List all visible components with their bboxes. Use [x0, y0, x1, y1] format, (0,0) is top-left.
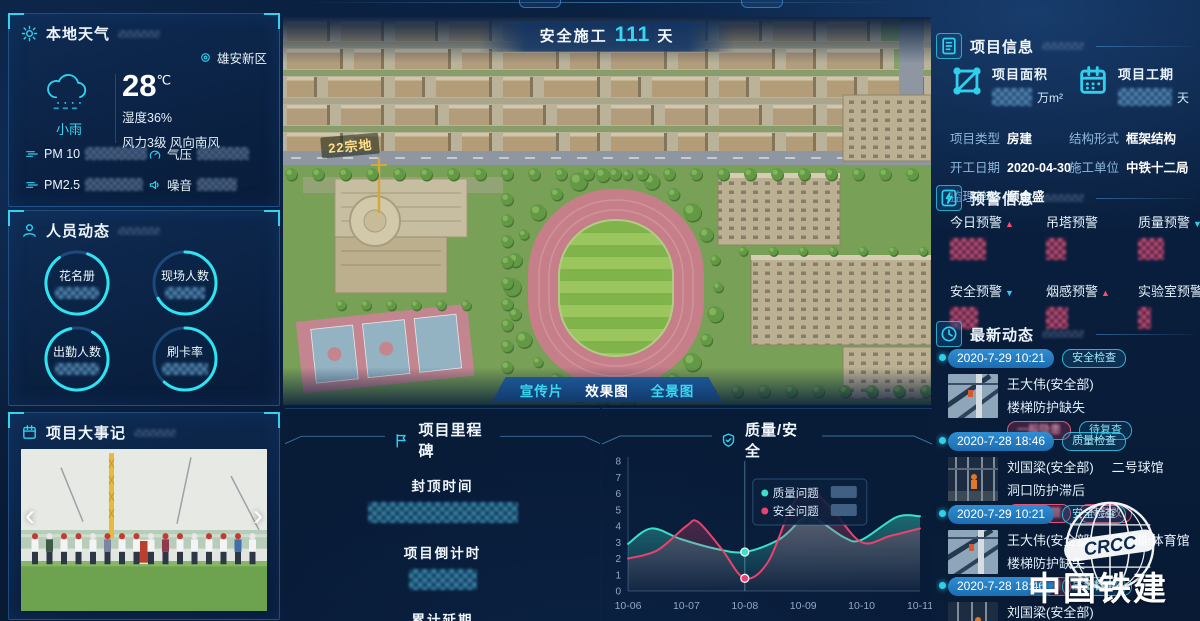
svg-text:安全问题: 安全问题: [773, 504, 819, 518]
entry-issue: 楼梯防护缺失: [1007, 553, 1194, 572]
metric-pm25: PM2.5: [25, 175, 148, 194]
humidity: 湿度36%: [122, 107, 220, 126]
svg-text:10-08: 10-08: [731, 600, 758, 612]
entry-person: 刘国梁(安全部): [1007, 602, 1094, 621]
person-icon: [21, 222, 38, 239]
field-start-date: 开工日期2020-04-30: [950, 157, 1069, 177]
top-bracket-decoration: [519, 0, 561, 8]
censored-value: [950, 238, 986, 260]
stat-label: 项目工期: [1118, 67, 1174, 82]
svg-text:3: 3: [615, 538, 621, 549]
censored-value: [368, 502, 518, 523]
project-events-panel: 项目大事记 ‹ ›: [8, 412, 280, 620]
quality-safety-panel: 质量/安全 01234567810-0610-0710-0810-0910-10…: [602, 408, 932, 621]
entry-time: 2020-7-28 18:46: [948, 432, 1054, 451]
timeline-dot: [939, 582, 946, 589]
sun-gear-icon: [21, 25, 38, 42]
entry-issue: 楼梯防护缺失: [1007, 397, 1194, 416]
calendar-book-icon: [21, 424, 38, 441]
field-contractor: 施工单位中铁十二局: [1069, 157, 1188, 177]
stat-unit: 天: [1177, 89, 1189, 106]
censored-value: [992, 88, 1032, 106]
divider: [115, 74, 116, 143]
temperature: 28℃: [122, 70, 220, 101]
timeline-dot: [939, 354, 946, 361]
censored-value: [55, 363, 99, 375]
ring-label: 花名册: [59, 267, 95, 284]
svg-text:10-07: 10-07: [673, 600, 700, 612]
document-icon: [936, 33, 962, 59]
weather-panel: 本地天气 雄安新区 小雨 28℃ 湿度36% 风力3级 风向南风: [8, 13, 280, 207]
stat-label: 项目面积: [992, 67, 1048, 82]
censored-header-text: [1042, 194, 1084, 202]
warning-today: 今日预警▲: [950, 212, 1046, 265]
campus-3d-render: [283, 17, 931, 405]
metric-noise: 噪音: [148, 175, 271, 194]
stat-project-area: 项目面积 万m²: [950, 64, 1063, 106]
scene-viewport[interactable]: 安全施工 111 天 22宗地 宣传片 效果图 全景图: [283, 17, 931, 405]
warning-crane: 吊塔预警: [1046, 212, 1138, 265]
censored-value: [197, 147, 249, 160]
entry-photo: [948, 530, 998, 574]
warnings-title: 预警信息: [970, 188, 1034, 209]
area-icon: [950, 64, 984, 98]
warning-quality: 质量预警▼: [1138, 212, 1200, 265]
svg-text:10-11: 10-11: [907, 600, 932, 612]
haze-icon: [25, 178, 39, 192]
field-project-type: 项目类型房建: [950, 128, 1069, 148]
entry-tag: 安全检查: [1062, 349, 1126, 368]
entry-person: 刘国梁(安全部): [1007, 457, 1094, 476]
warnings-panel: 预警信息 今日预警▲ 吊塔预警 质量预警▼ 安全预警▼ 烟感预警▲: [936, 176, 1194, 312]
svg-text:2: 2: [615, 554, 621, 565]
flag-icon: [393, 432, 410, 449]
stat-ring-onsite: 现场人数: [149, 247, 221, 319]
censored-value: [85, 147, 147, 160]
personnel-panel-title: 人员动态: [46, 220, 110, 241]
trend-up-icon: ▲: [1005, 219, 1014, 229]
district-label: 雄安新区: [199, 48, 267, 67]
events-panel-title: 项目大事记: [46, 422, 126, 443]
quality-safety-chart: 01234567810-0610-0710-0810-0910-1010-11质…: [602, 451, 932, 621]
header-line: [1096, 334, 1194, 335]
entry-person: 王大伟(安全部): [1007, 374, 1094, 393]
entry-issue: 洞口防护滞后: [1007, 480, 1194, 499]
haze-icon: [25, 147, 39, 161]
censored-value: [1138, 238, 1164, 260]
entry-time: 2020-7-29 10:21: [948, 349, 1054, 368]
svg-text:8: 8: [615, 457, 621, 468]
clock-icon: [936, 321, 962, 347]
metric-pressure: 气压: [148, 144, 271, 163]
title-decoration-left: [285, 435, 385, 445]
feed-entry[interactable]: 2020-7-28 18:46 质量检查 刘国梁(安全部): [948, 577, 1194, 621]
censored-header-text: [1042, 42, 1084, 50]
entry-tag: 质量检查: [1062, 577, 1126, 596]
safety-days-count: 111: [615, 23, 651, 47]
stat-project-duration: 项目工期 天: [1076, 64, 1189, 106]
alert-lightning-icon: [936, 185, 962, 211]
entry-time: 2020-7-29 10:21: [948, 505, 1054, 524]
milestone-delay: 累计延期: [285, 609, 600, 621]
censored-header-text: [118, 227, 160, 235]
tab-render-view[interactable]: 效果图: [585, 380, 629, 400]
svg-text:质量问题: 质量问题: [773, 487, 819, 500]
calendar-icon: [1076, 64, 1110, 98]
milestone-title: 项目里程碑: [418, 419, 491, 461]
tab-panorama[interactable]: 全景图: [651, 380, 695, 400]
pressure-icon: [148, 147, 162, 161]
safety-days-banner: 安全施工 111 天: [480, 21, 735, 52]
tab-promo-video[interactable]: 宣传片: [520, 380, 564, 400]
entry-photo: [948, 374, 998, 418]
location-target-icon: [199, 51, 212, 64]
milestone-topping-time: 封顶时间: [285, 475, 600, 528]
safety-days-unit: 天: [657, 25, 674, 46]
dashboard: 安全施工 111 天 22宗地 宣传片 效果图 全景图 本地天气 雄安新区: [0, 0, 1200, 621]
entry-tag: 质量检查: [1062, 432, 1126, 451]
header-line: [1096, 46, 1194, 47]
entry-person: 王大伟(安全部): [1007, 530, 1094, 549]
feed-title: 最新动态: [970, 324, 1034, 345]
project-info-panel: 项目信息 项目面积 万m² 项目工期 天 项目类型房建: [936, 24, 1194, 174]
carousel-next-arrow[interactable]: ›: [253, 501, 263, 531]
censored-value: [165, 287, 205, 299]
censored-value: [409, 569, 477, 590]
district-name: 雄安新区: [217, 48, 267, 67]
entry-time: 2020-7-28 18:46: [948, 577, 1054, 596]
censored-header-text: [134, 429, 176, 437]
svg-text:10-06: 10-06: [615, 600, 642, 612]
svg-text:5: 5: [615, 505, 621, 516]
title-decoration-left: [602, 435, 712, 445]
field-structure-type: 结构形式框架结构: [1069, 128, 1188, 148]
svg-text:1: 1: [615, 570, 621, 581]
ring-label: 现场人数: [161, 267, 209, 284]
censored-value: [1118, 88, 1172, 106]
carousel-prev-arrow[interactable]: ‹: [25, 501, 35, 531]
safety-days-label: 安全施工: [540, 25, 608, 46]
shield-check-icon: [720, 432, 737, 449]
entry-photo: [948, 602, 998, 621]
censored-header-text: [1042, 330, 1084, 338]
censored-header-text: [118, 30, 160, 38]
entry-tag: 安全检查: [1062, 505, 1126, 524]
stat-ring-swipe-rate: 刷卡率: [149, 323, 221, 395]
timeline-dot: [939, 437, 946, 444]
svg-text:4: 4: [615, 522, 621, 533]
project-info-title: 项目信息: [970, 36, 1034, 57]
milestone-countdown: 项目倒计时: [285, 542, 600, 595]
censored-value: [85, 178, 143, 191]
header-line: [1096, 198, 1194, 199]
svg-text:6: 6: [615, 489, 621, 500]
entry-location: 多功能体育馆: [1112, 530, 1190, 549]
censored-value: [55, 287, 99, 299]
censored-value: [1046, 238, 1066, 260]
weather-panel-title: 本地天气: [46, 23, 110, 44]
noise-speaker-icon: [148, 178, 162, 192]
censored-value: [162, 363, 208, 375]
milestone-panel: 项目里程碑 封顶时间 项目倒计时 累计延期: [285, 408, 600, 621]
entry-photo: [948, 457, 998, 501]
stat-unit: 万m²: [1037, 89, 1063, 106]
trend-down-icon: ▼: [1005, 288, 1014, 298]
latest-feed-panel: 最新动态 2020-7-29 10:21 安全检查 王大伟(安全部) 楼梯防护缺…: [936, 312, 1194, 621]
censored-value: [197, 178, 237, 191]
feed-entry[interactable]: 2020-7-29 10:21 安全检查 王大伟(安全部) 楼梯防护缺失 一般隐…: [948, 349, 1194, 440]
svg-text:7: 7: [615, 473, 621, 484]
svg-text:0: 0: [615, 587, 621, 598]
scene-tab-bar: 宣传片 效果图 全景图: [492, 377, 723, 402]
trend-up-icon: ▲: [1101, 288, 1110, 298]
stat-ring-attendance: 出勤人数: [41, 323, 113, 395]
rain-cloud-icon: [41, 70, 97, 112]
metric-pm10: PM 10: [25, 144, 148, 163]
milestone-photo: [21, 449, 267, 611]
title-decoration-right: [822, 435, 932, 445]
svg-text:10-10: 10-10: [848, 600, 875, 612]
title-decoration-right: [500, 435, 600, 445]
personnel-panel: 人员动态 花名册 现场人数 出勤人数 刷卡率: [8, 210, 280, 406]
ring-label: 出勤人数: [53, 343, 101, 360]
condition-label: 小雨: [23, 119, 115, 138]
entry-location: 二号球馆: [1112, 457, 1164, 476]
weather-condition: 小雨: [23, 70, 115, 151]
svg-text:10-09: 10-09: [790, 600, 817, 612]
top-bracket-decoration: [741, 0, 783, 8]
timeline-dot: [939, 510, 946, 517]
trend-down-icon: ▼: [1193, 219, 1200, 229]
ring-label: 刷卡率: [167, 343, 203, 360]
stat-ring-roster: 花名册: [41, 247, 113, 319]
